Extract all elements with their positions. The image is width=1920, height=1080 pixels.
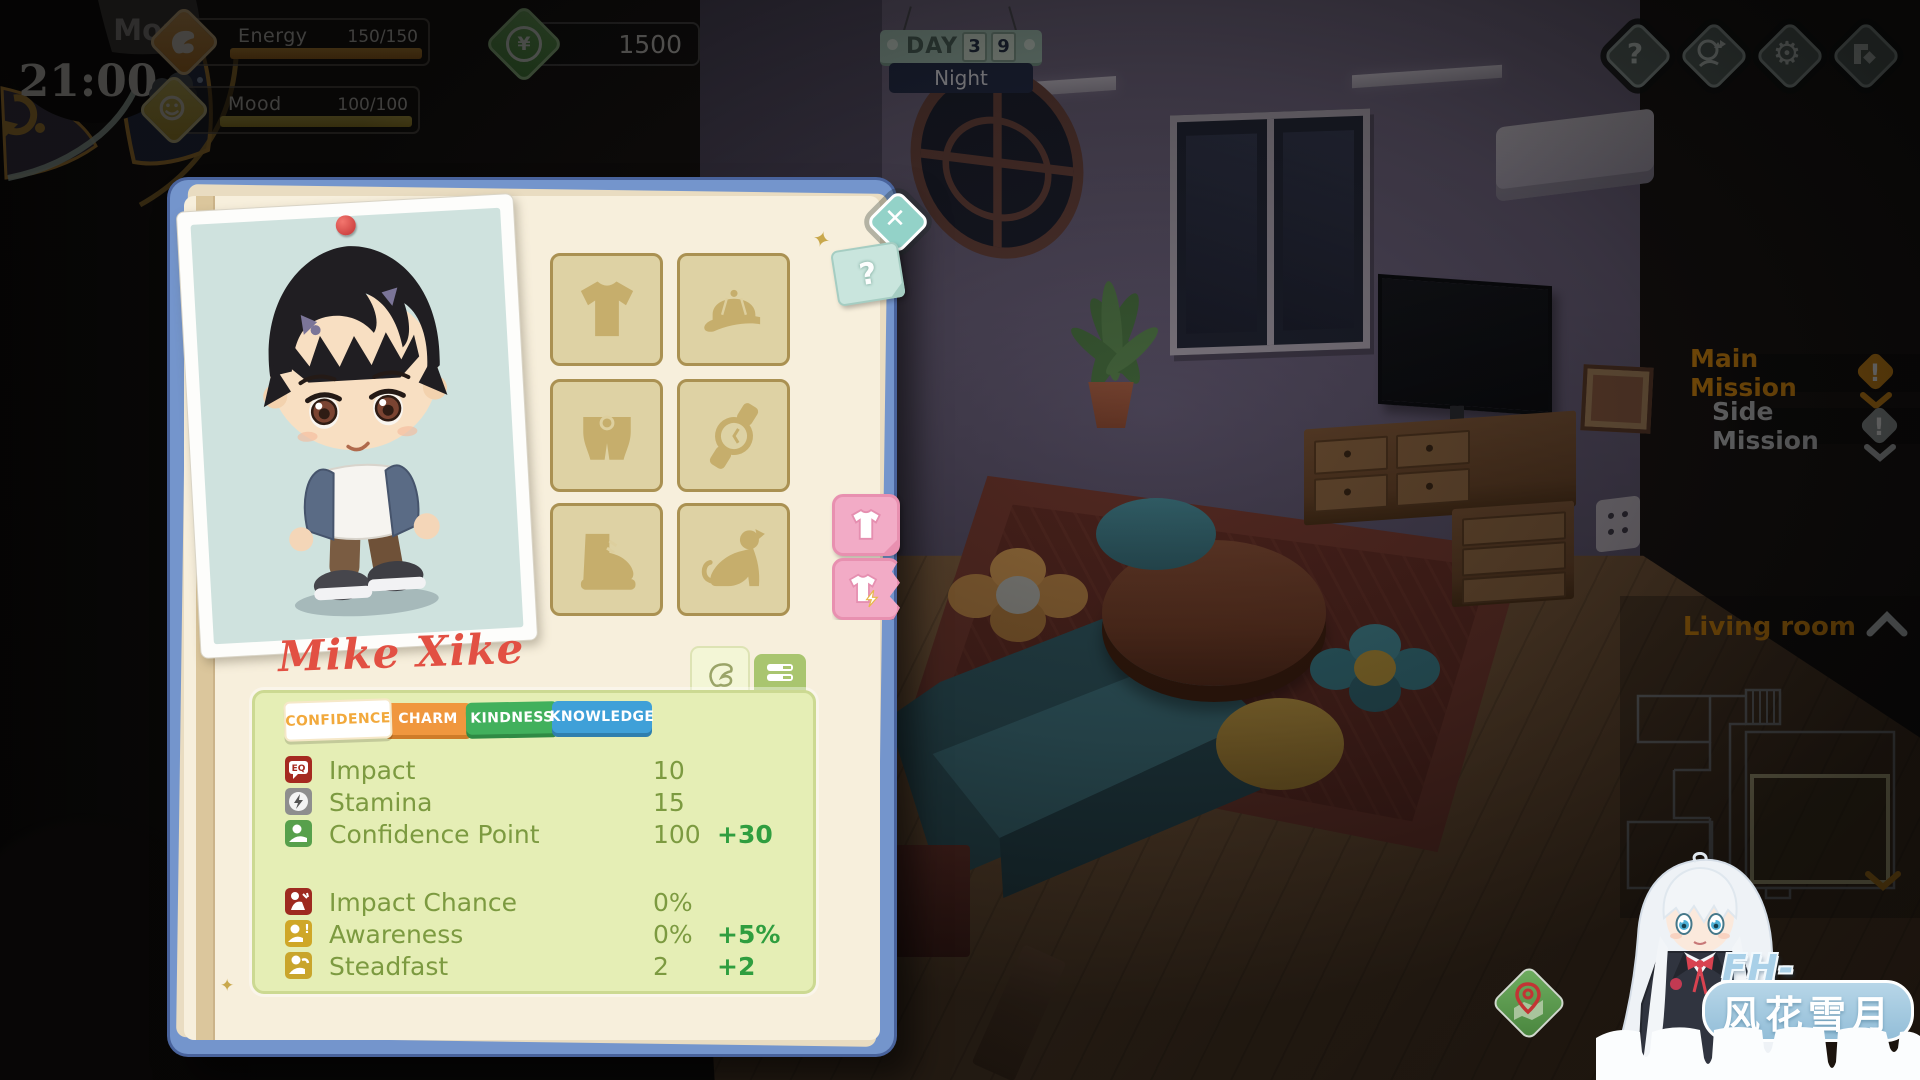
album-button[interactable]	[1683, 25, 1739, 81]
energy-label: Energy	[238, 25, 308, 47]
time-period-badge: Night	[889, 63, 1033, 93]
awareness-icon: !	[285, 920, 312, 947]
tshirt-bolt-icon	[844, 570, 882, 608]
room-name-label: Living room	[1683, 612, 1856, 642]
money-counter: 1500 ¥	[502, 20, 702, 68]
main-mission-alert-icon[interactable]: !	[1854, 352, 1896, 394]
stamina-icon	[285, 788, 312, 815]
outfit-button[interactable]	[832, 494, 900, 556]
character-portrait	[196, 212, 518, 638]
tab-knowledge[interactable]: KNOWLEDGE	[552, 701, 652, 733]
muscle-tab-icon	[703, 656, 737, 690]
dog-icon	[696, 522, 772, 598]
stat-row-confidence-point: Confidence Point 100 +30	[255, 819, 813, 849]
tab-kindness[interactable]: KINDNESS	[466, 701, 559, 735]
exit-icon	[1835, 25, 1891, 81]
close-button[interactable]: ✕	[868, 192, 922, 246]
svg-text:EQ: EQ	[292, 764, 306, 774]
question-icon: ?	[1607, 25, 1663, 81]
game-screen: 21:00 Mon Energy 150/150	[0, 0, 1920, 1080]
equip-slot-hat[interactable]	[677, 253, 790, 366]
exit-button[interactable]	[1835, 25, 1891, 81]
minimap-floorplan[interactable]	[1626, 650, 1916, 904]
settings-button[interactable]: ⚙	[1759, 25, 1815, 81]
main-mission-label: Main Mission	[1690, 344, 1846, 402]
money-value: 1500	[618, 30, 682, 59]
mood-label: Mood	[228, 93, 282, 115]
clock-time: 21:00	[19, 56, 158, 107]
boot-icon	[569, 522, 645, 598]
stat-row-steadfast: Steadfast 2 +2	[255, 951, 813, 981]
character-photo	[176, 193, 538, 659]
energy-fill	[230, 48, 422, 59]
equip-slot-shoes[interactable]	[550, 503, 663, 616]
tshirt-icon	[846, 505, 886, 545]
side-mission-label: Side Mission	[1712, 397, 1858, 455]
tab-confidence[interactable]: CONFIDENCE	[283, 698, 392, 742]
list-tab-icon	[765, 662, 795, 688]
mood-fill	[220, 116, 412, 127]
character-album-icon	[1683, 25, 1739, 81]
equip-slot-watch[interactable]	[677, 379, 790, 492]
side-mission-alert-icon[interactable]: !	[1858, 406, 1900, 448]
impact-chance-icon	[285, 888, 312, 915]
stat-row-impact: EQ Impact 10	[255, 755, 813, 785]
quick-outfit-button[interactable]	[832, 558, 900, 620]
steadfast-icon	[285, 952, 312, 979]
confidence-point-icon	[285, 820, 312, 847]
stat-row-impact-chance: Impact Chance 0%	[255, 887, 813, 917]
mood-bar: Mood 100/100	[152, 86, 418, 134]
character-panel: ✦ ✦ Mike Xike EQ Impact 10	[170, 180, 894, 1054]
energy-value: 150/150	[347, 27, 418, 47]
equip-slot-shirt[interactable]	[550, 253, 663, 366]
smiley-icon	[154, 90, 190, 126]
watch-icon	[696, 398, 772, 474]
cap-icon	[696, 272, 772, 348]
day-digit: 3	[962, 32, 987, 62]
stat-row-awareness: ! Awareness 0% +5%	[255, 919, 813, 949]
day-night-board: DAY 3 9 Night	[880, 4, 1042, 96]
impact-icon: EQ	[285, 756, 312, 783]
day-board: DAY 3 9	[880, 30, 1042, 66]
gear-icon: ⚙	[1759, 25, 1815, 81]
muscle-icon	[164, 22, 200, 58]
side-mission-chevron-icon[interactable]	[1862, 444, 1898, 462]
panel-help-button[interactable]: ?	[830, 241, 906, 307]
shirt-icon	[569, 272, 645, 348]
minimap-panel: Living room	[1620, 596, 1920, 918]
question-icon: ?	[857, 255, 880, 292]
yen-icon: ¥	[506, 26, 542, 62]
energy-bar: Energy 150/150	[162, 18, 428, 66]
svg-text:!: !	[304, 922, 309, 936]
close-icon: ✕	[868, 192, 922, 246]
shorts-icon	[569, 398, 645, 474]
mood-value: 100/100	[337, 95, 408, 115]
tab-charm[interactable]: CHARM	[384, 703, 472, 735]
equip-slot-pants[interactable]	[550, 379, 663, 492]
equip-slot-pet[interactable]	[677, 503, 790, 616]
day-digit: 9	[991, 32, 1016, 62]
minimap-up-chevron-icon[interactable]	[1864, 610, 1910, 638]
character-name: Mike Xike	[277, 624, 525, 682]
minimap-down-chevron-icon[interactable]	[1862, 870, 1902, 892]
help-button[interactable]: ?	[1607, 25, 1663, 81]
day-prefix: DAY	[906, 34, 958, 59]
sparkle-icon: ✦	[220, 976, 234, 996]
stat-row-stamina: Stamina 15	[255, 787, 813, 817]
